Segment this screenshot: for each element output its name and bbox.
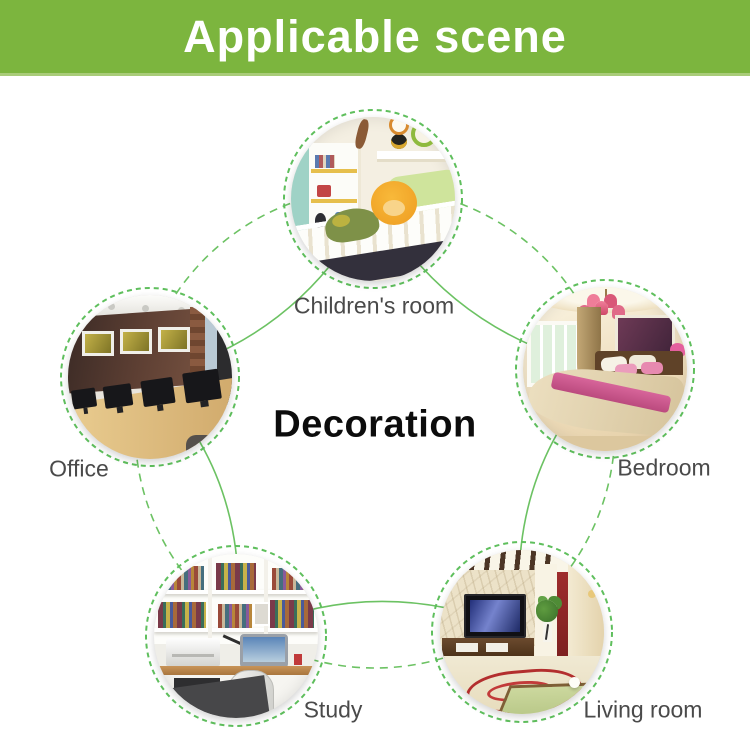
computer-monitor [240,634,288,668]
red-toy [317,185,331,197]
pink-pillow [641,362,663,374]
top-shelf [377,151,449,159]
hallway [568,564,604,662]
monitor [71,387,97,409]
childrens-room-photo [291,117,455,281]
monkey-decal [354,118,371,150]
bee-plush [391,134,407,149]
wall-decal [389,117,409,135]
ceiling-lights [108,303,115,310]
wall-decal [411,121,437,147]
books [158,602,206,628]
books [270,600,314,628]
red-accent-wall [557,572,568,660]
floor [154,675,271,718]
scene-label-bedroom: Bedroom [617,455,710,482]
monitor [140,377,175,407]
center-label: Decoration [273,404,476,447]
scene-label-living-room: Living room [584,697,703,724]
teal-wall [291,117,311,239]
page: Applicable scene Decoration [0,0,750,750]
shelf-board [154,628,318,632]
white-ball [569,677,580,688]
red-cup [294,654,302,665]
office-photo [68,295,232,459]
living-room-photo [440,550,604,714]
framed-picture [82,331,114,356]
bear-plush [371,181,417,225]
vase [543,622,552,642]
book-stack [315,155,335,168]
framed-picture [158,327,190,352]
books [216,563,256,590]
shelf-divider [264,554,268,644]
shelf-board [311,199,357,203]
books [272,568,312,590]
shelf-board [154,590,318,594]
books [218,604,252,628]
tv-cabinet [442,638,534,658]
monitor [103,383,134,409]
plant [536,600,558,622]
monitor [182,369,222,404]
study-photo [154,554,318,718]
office-chair [186,435,216,459]
wall-light [588,590,596,598]
tv-screen [464,594,526,638]
photo-frame [253,602,270,626]
scene-label-childrens-room: Children's room [294,293,454,320]
bedroom-photo [523,287,687,451]
floor [523,436,687,451]
shelf-divider [208,554,212,644]
books [160,566,204,590]
scene-label-study: Study [304,697,363,724]
framed-picture [120,329,152,354]
scene-label-office: Office [49,456,109,483]
printer [166,638,220,666]
shelf-board [311,169,357,173]
